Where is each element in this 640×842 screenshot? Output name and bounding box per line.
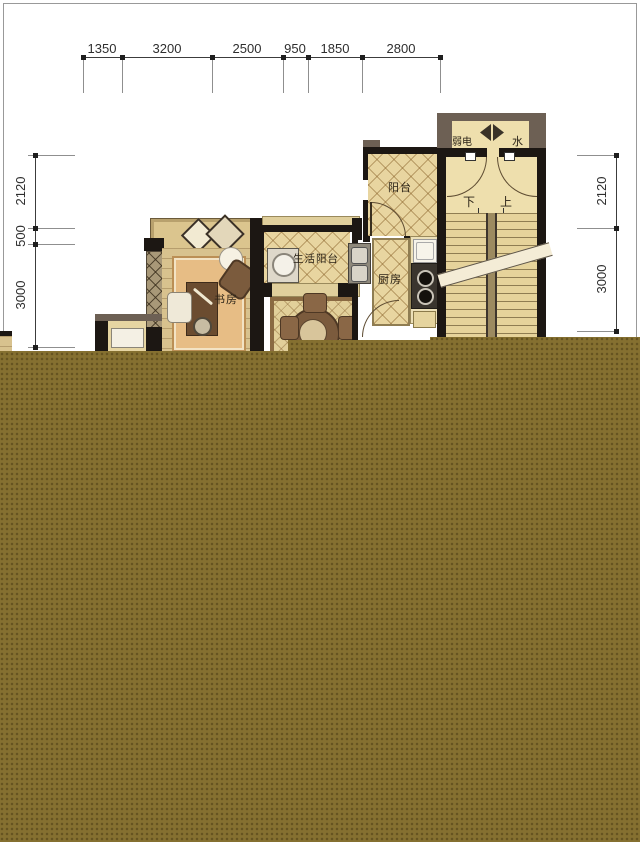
wall-corner — [529, 113, 546, 150]
witness-line — [122, 58, 123, 93]
wall-segment — [363, 236, 370, 242]
dim-label-top: 2800 — [371, 41, 431, 56]
redaction-overlay — [0, 337, 640, 842]
stair-flight-up — [497, 213, 537, 340]
witness-line — [577, 228, 617, 229]
study-armchair — [167, 292, 192, 323]
dining-chair — [303, 293, 327, 313]
room-label-service-balcony: 生活阳台 — [293, 251, 339, 266]
door-leaf — [370, 202, 372, 236]
top-dimension-line — [83, 57, 440, 58]
witness-line — [283, 58, 284, 93]
wall-segment — [437, 157, 446, 341]
right-dimension-line — [616, 155, 617, 331]
witness-line — [83, 58, 84, 93]
dim-label-top: 3200 — [137, 41, 197, 56]
wall-corner — [437, 113, 452, 150]
tick-mark — [614, 226, 619, 231]
wall-segment — [262, 225, 358, 232]
room-label-water: 水 — [512, 133, 523, 149]
witness-line — [308, 58, 309, 93]
wall-segment — [95, 321, 108, 351]
desk-globe — [193, 317, 212, 336]
bathtub — [111, 328, 144, 348]
sink-basin — [351, 265, 368, 282]
tick-mark — [614, 329, 619, 334]
stair-label-up: 上 — [500, 193, 512, 210]
wall-segment — [352, 218, 362, 240]
tick-mark — [438, 55, 443, 60]
witness-line — [577, 155, 617, 156]
stair-label-down: 下 — [463, 193, 475, 210]
witness-line — [362, 58, 363, 93]
witness-line — [212, 58, 213, 93]
room-label-weak-electric: 弱电 — [452, 133, 472, 148]
wall-segment — [95, 314, 162, 321]
tick-mark — [33, 345, 38, 350]
tick-mark — [33, 153, 38, 158]
wall-segment — [262, 283, 272, 297]
tick-mark — [33, 242, 38, 247]
tick-mark — [614, 153, 619, 158]
stove-burner — [417, 270, 434, 287]
wall-segment — [144, 238, 164, 251]
witness-line — [577, 331, 617, 332]
left-dimension-line — [35, 155, 36, 347]
tick-mark — [33, 226, 38, 231]
dim-label-left: 500 — [13, 206, 27, 266]
sink-basin — [351, 247, 368, 264]
witness-line — [440, 58, 441, 93]
dim-label-right: 3000 — [594, 249, 608, 309]
wall-segment — [146, 327, 163, 351]
room-label-study: 书房 — [214, 291, 238, 307]
dim-label-top: 1850 — [305, 41, 365, 56]
dining-chair — [280, 316, 299, 340]
tick-mark — [210, 55, 215, 60]
dim-label-right: 2120 — [594, 161, 608, 221]
room-label-balcony: 阳台 — [388, 179, 412, 195]
dim-label-top: 1350 — [72, 41, 132, 56]
floorplan-canvas: 1350 3200 2500 950 1850 2800 2120 500 30… — [0, 0, 640, 842]
wall-opening — [487, 148, 499, 157]
floor-fragment — [0, 336, 12, 351]
sink-basin — [416, 242, 434, 260]
room-label-kitchen: 厨房 — [378, 271, 402, 287]
kitchen-cabinet — [413, 311, 436, 328]
wall-segment — [363, 147, 437, 154]
dim-label-left: 3000 — [13, 265, 27, 325]
stair-stringer — [486, 213, 497, 340]
stove-burner — [417, 288, 434, 305]
